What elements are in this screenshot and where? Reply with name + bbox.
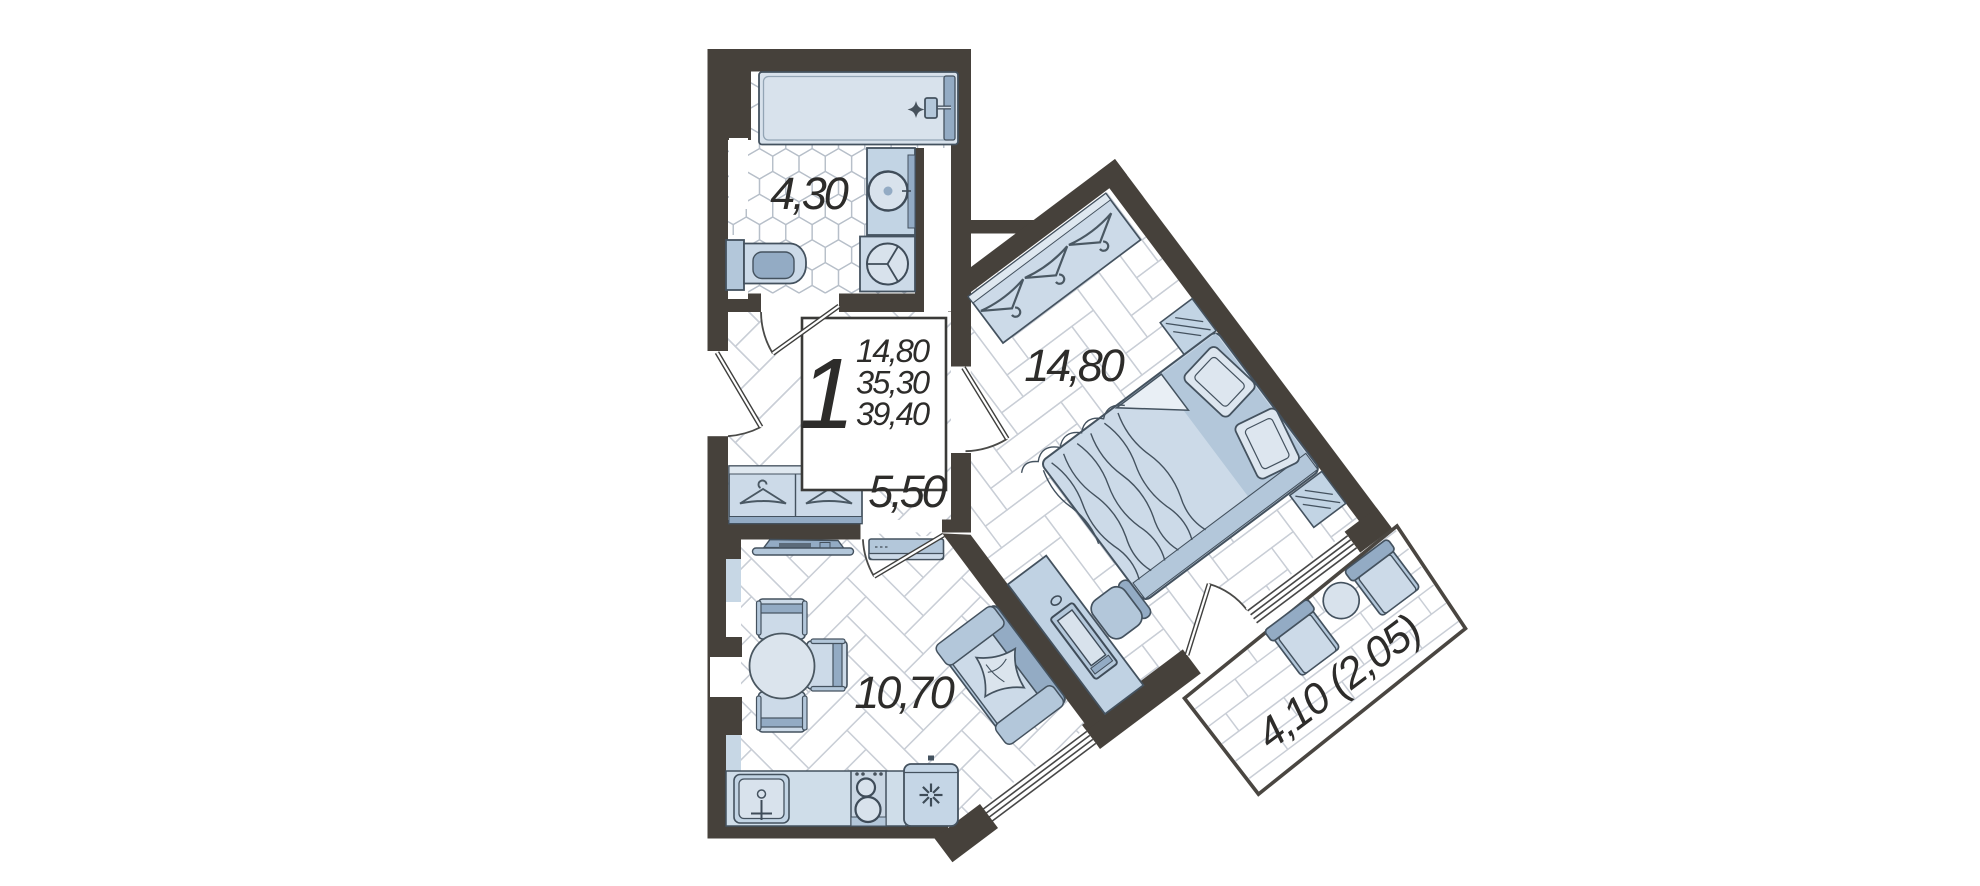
svg-text:1: 1 bbox=[799, 338, 853, 450]
svg-text:14,80: 14,80 bbox=[1024, 340, 1125, 391]
svg-text:5,50: 5,50 bbox=[868, 466, 947, 517]
svg-text:4,30: 4,30 bbox=[770, 168, 849, 219]
svg-text:10,70: 10,70 bbox=[854, 667, 955, 718]
svg-text:39,40: 39,40 bbox=[856, 396, 930, 432]
